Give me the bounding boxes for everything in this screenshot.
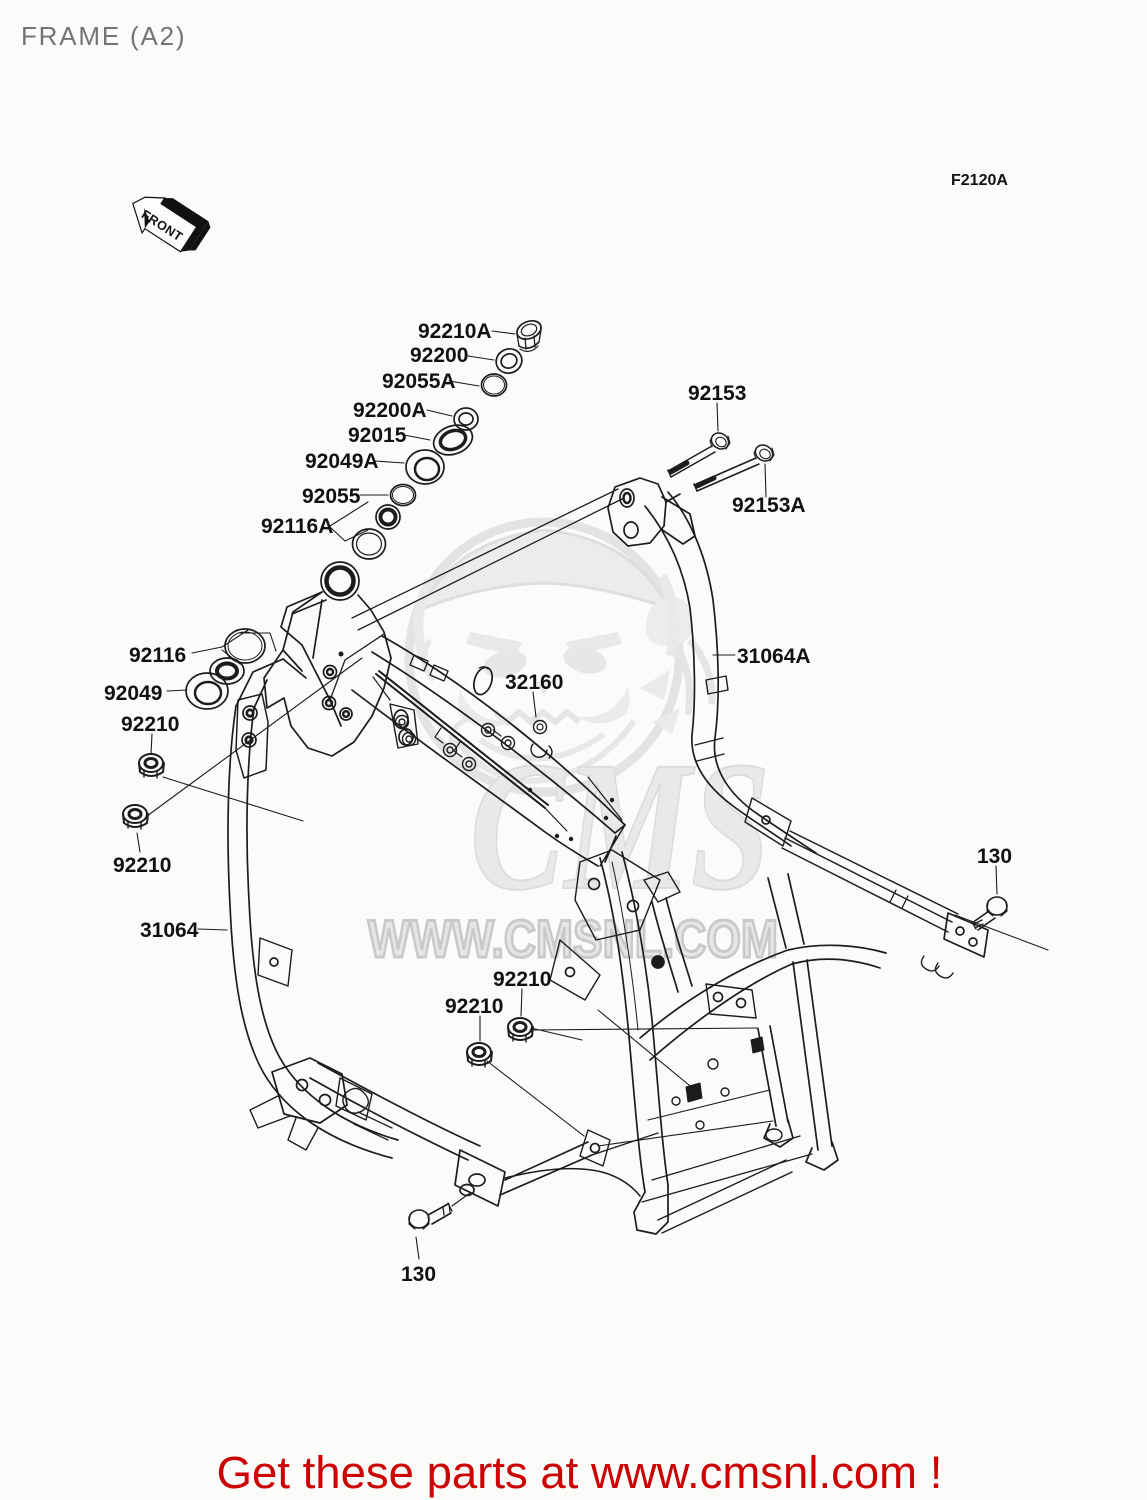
svg-text:92015: 92015 [348, 424, 407, 447]
svg-text:CMS: CMS [470, 724, 770, 929]
svg-text:92116: 92116 [129, 644, 186, 667]
svg-text:F2120A: F2120A [951, 172, 1008, 189]
svg-text:92049A: 92049A [305, 450, 379, 473]
svg-text:92210: 92210 [121, 713, 179, 736]
svg-text:92049: 92049 [104, 682, 162, 705]
svg-text:92153: 92153 [688, 382, 746, 405]
svg-text:92210: 92210 [113, 854, 171, 877]
svg-text:130: 130 [401, 1263, 436, 1286]
svg-text:92210A: 92210A [418, 320, 492, 343]
svg-text:31064: 31064 [140, 919, 199, 942]
svg-text:92210: 92210 [493, 968, 551, 991]
svg-text:92153A: 92153A [732, 494, 806, 517]
svg-text:92210: 92210 [445, 995, 503, 1018]
svg-text:130: 130 [977, 845, 1012, 868]
svg-text:92200A: 92200A [353, 399, 427, 422]
svg-text:92055: 92055 [302, 485, 361, 508]
svg-text:92116A: 92116A [261, 515, 333, 538]
svg-text:32160: 32160 [505, 671, 563, 694]
svg-text:92200: 92200 [410, 344, 468, 367]
svg-text:92055A: 92055A [382, 370, 456, 393]
svg-text:WWW.CMSNL.COM: WWW.CMSNL.COM [368, 910, 778, 969]
svg-text:31064A: 31064A [737, 645, 811, 668]
